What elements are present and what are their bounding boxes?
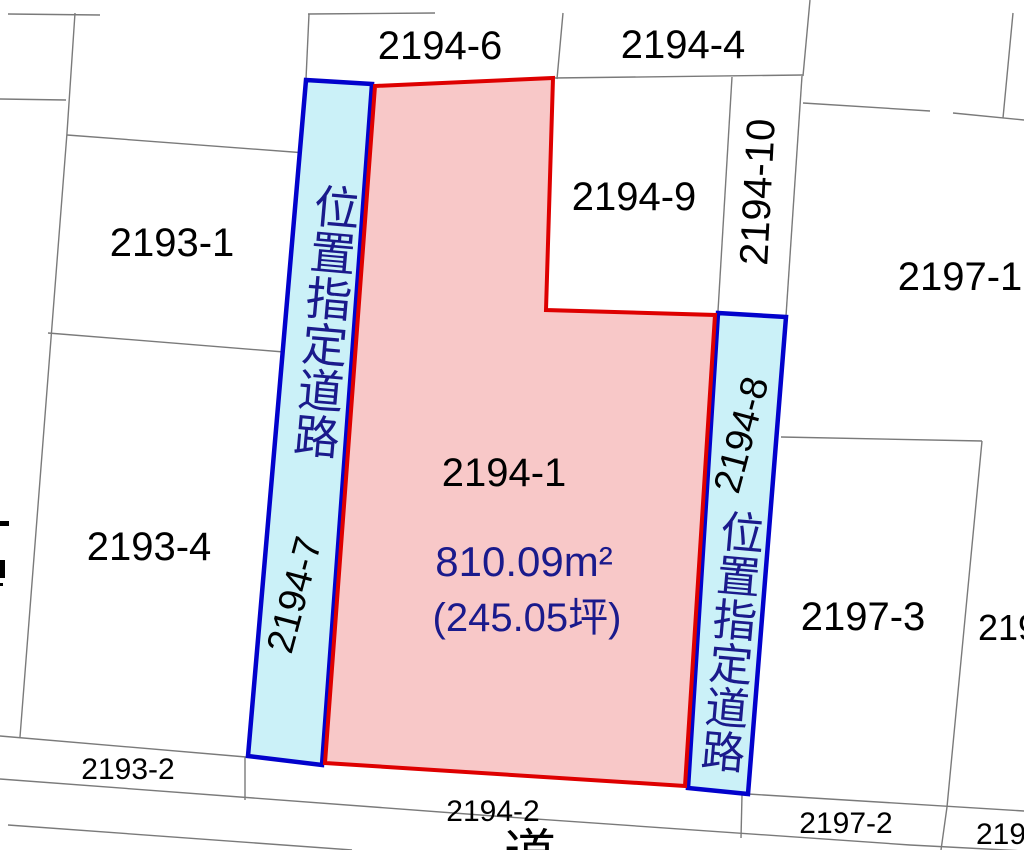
parcel-label-2194-9: 2194-9 — [572, 177, 697, 217]
main-parcel-number: 2194-1 — [442, 453, 567, 493]
parcel-label-219-partial: 219 — [978, 610, 1024, 646]
road-bottom-number-2194-2: 2194-2 — [446, 797, 539, 827]
parcel-label-2193-4: 2193-4 — [87, 527, 212, 567]
parcel-label-2197-1: 2197-1 — [898, 257, 1023, 297]
parcel-label-2194-4: 2194-4 — [621, 25, 746, 65]
parcel-label-2197-3: 2197-3 — [801, 597, 926, 637]
left-edge-text-fragments — [0, 521, 9, 586]
road-bottom-label-michi: 道 — [504, 829, 556, 850]
parcel-label-2199-partial: 2199 — [976, 820, 1024, 850]
parcel-label-2193-2: 2193-2 — [81, 755, 174, 785]
parcel-label-2197-2: 2197-2 — [799, 809, 892, 839]
parcel-map-canvas — [0, 0, 1024, 850]
parcel-label-2193-1: 2193-1 — [110, 223, 235, 263]
parcel-label-2194-6: 2194-6 — [378, 26, 503, 66]
main-parcel-area-tsubo: (245.05坪) — [433, 598, 622, 638]
cadastral-map: 2194-6 2194-4 2194-9 2194-10 2197-1 2193… — [0, 0, 1024, 850]
parcel-label-2194-10: 2194-10 — [734, 118, 782, 267]
main-parcel-area-m2: 810.09m² — [435, 541, 612, 583]
